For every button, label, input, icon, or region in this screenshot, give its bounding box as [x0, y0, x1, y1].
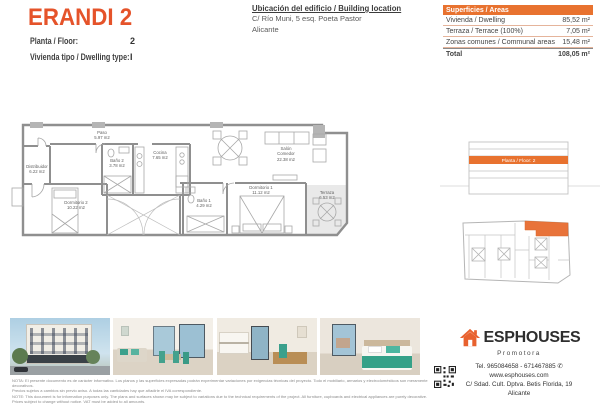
disclaimer-line: NOTA: El presente documento es de caráct…	[12, 378, 436, 388]
table-row: Vivienda / Dwelling 85,52 m²	[443, 15, 593, 26]
brand-tagline: Promotora	[443, 350, 595, 357]
brand-name: ESPHOUSES	[484, 329, 581, 347]
disclaimer-line: NOTE: This document is for information p…	[12, 394, 436, 399]
table-row: Terraza / Terrace (100%) 7,05 m²	[443, 26, 593, 37]
area-label: Terraza / Terrace (100%)	[446, 28, 523, 35]
car	[14, 367, 28, 372]
room-area: 4.29 m2	[196, 203, 212, 208]
room-area: 6.53 m2	[319, 195, 335, 200]
esphouses-house-icon	[458, 327, 482, 349]
phone-icon: ✆	[557, 363, 562, 370]
table-row: Zonas comunes / Communal areas 15,48 m²	[443, 37, 593, 48]
page-title: ERANDI 2	[28, 4, 132, 32]
terrace-door	[251, 326, 269, 360]
area-value: 15,48 m²	[562, 39, 590, 46]
pillow	[386, 346, 400, 353]
room-area: 10.22 m2	[67, 205, 86, 210]
stair-core-marks	[107, 195, 180, 235]
chair	[183, 352, 189, 364]
areas-table: Superficies / Areas Vivienda / Dwelling …	[443, 5, 593, 59]
highlighted-floor-label: Planta / Floor: 2	[502, 158, 536, 164]
footer-brand-block: ESPHOUSES Promotora Tel. 965084658 - 671…	[443, 327, 595, 399]
area-value: 85,52 m²	[562, 17, 590, 24]
photo-bedroom	[320, 318, 420, 375]
building-outline	[469, 142, 568, 194]
area-total-label: Total	[446, 51, 462, 58]
room-area: 11.12 m2	[252, 190, 270, 195]
pillow	[368, 346, 382, 353]
building-location-street: C/ Río Muni, 5 esq. Poeta Pastor	[252, 14, 432, 24]
tree	[86, 350, 100, 364]
key-plan	[445, 205, 595, 305]
photo-kitchen	[217, 318, 317, 375]
room-area: 6.22 m2	[29, 169, 45, 174]
field-dwelling-type-label: Vivienda tipo / Dwelling type:	[30, 52, 129, 62]
floor-plan: Distribuidor6.22 m2 Paso5.97 m2 Baño 23.…	[10, 96, 360, 246]
windows	[30, 328, 88, 354]
room-area: 3.78 m2	[109, 163, 125, 168]
room-area: 22.38 m2	[277, 157, 296, 162]
field-dwelling-type-value: I	[130, 52, 133, 62]
brand-row: ESPHOUSES	[443, 327, 595, 349]
area-label: Vivienda / Dwelling	[446, 17, 505, 24]
chair	[159, 351, 165, 363]
table-row-total: Total 108,05 m²	[443, 48, 593, 59]
legal-disclaimer: NOTA: El presente documento es de caráct…	[12, 378, 436, 404]
area-label: Zonas comunes / Communal areas	[446, 39, 555, 46]
contact-website: www.esphouses.com	[443, 371, 595, 380]
photo-living-room	[113, 318, 213, 375]
contact-block: Tel. 965084658 - 671467885 ✆ www.esphous…	[443, 362, 595, 399]
city-view	[336, 338, 350, 348]
field-dwelling-type: Vivienda tipo / Dwelling type: I	[30, 52, 250, 64]
field-floor: Planta / Floor: 2	[30, 36, 250, 48]
contact-city: Alicante	[443, 389, 595, 398]
blanket	[362, 356, 412, 368]
building-location: Ubicación del edificio / Building locati…	[252, 4, 432, 35]
storefront	[27, 355, 91, 363]
field-floor-value: 2	[130, 36, 135, 46]
building-location-title: Ubicación del edificio / Building locati…	[252, 4, 427, 13]
photo-building-exterior	[10, 318, 110, 375]
room-area: 5.97 m2	[94, 135, 110, 140]
contact-address: C/ Sdad. Cult. Dptva. Betis Florida, 19	[443, 380, 595, 389]
building-section-diagram: Planta / Floor: 2	[440, 130, 600, 205]
field-floor-label: Planta / Floor:	[30, 36, 78, 46]
counter	[219, 342, 249, 344]
building	[26, 324, 92, 364]
wall-art	[297, 326, 307, 338]
cushion	[131, 349, 139, 355]
chair	[173, 351, 179, 363]
contact-phone: Tel. 965084658 - 671467885 ✆	[443, 362, 595, 371]
wall-art	[121, 326, 129, 336]
areas-table-header: Superficies / Areas	[443, 5, 593, 15]
room-label: Comedor	[277, 151, 295, 156]
qr-code	[434, 366, 456, 388]
area-total-value: 108,05 m²	[558, 51, 590, 58]
chair	[279, 344, 287, 358]
area-value: 7,05 m²	[566, 28, 590, 35]
building-location-city: Alicante	[252, 25, 432, 35]
tree	[12, 348, 28, 364]
cushion	[120, 349, 128, 355]
flyer-page: { "colors": { "accent": "#E5532A", "acce…	[0, 0, 600, 400]
room-area: 7.65 m2	[152, 155, 168, 160]
